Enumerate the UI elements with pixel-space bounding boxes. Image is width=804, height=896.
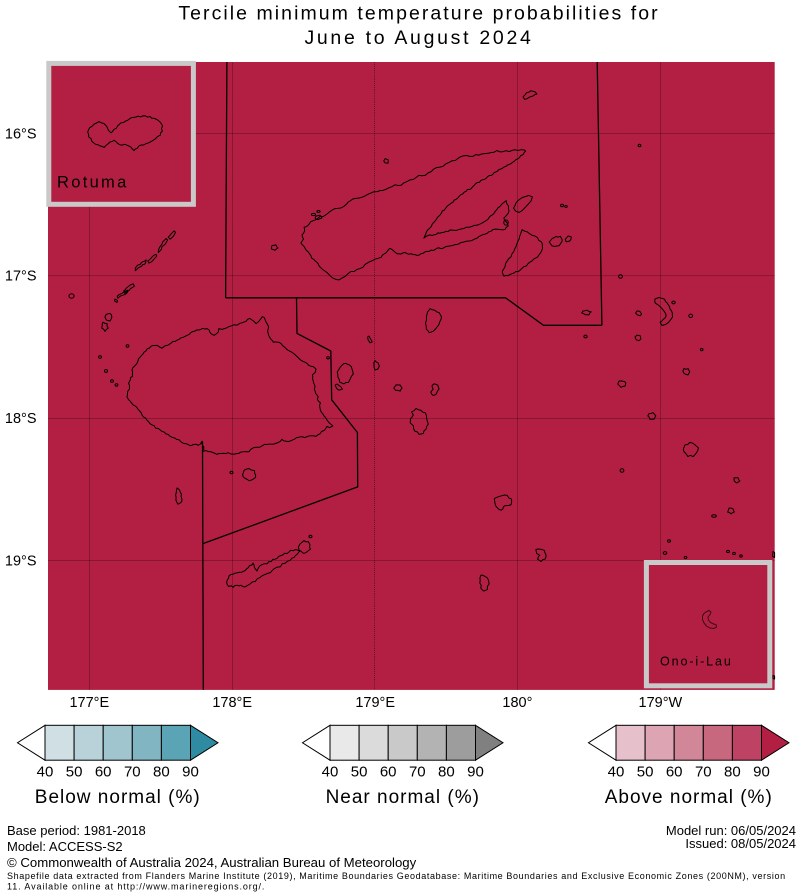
svg-text:60: 60 <box>380 764 397 781</box>
svg-text:Tercile minimum temperature pr: Tercile minimum temperature probabilitie… <box>178 3 659 25</box>
svg-text:Below normal (%): Below normal (%) <box>35 787 201 808</box>
svg-text:60: 60 <box>95 764 112 781</box>
svg-text:179°W: 179°W <box>639 695 683 711</box>
svg-text:180°: 180° <box>502 695 532 711</box>
svg-text:40: 40 <box>322 764 339 781</box>
svg-text:60: 60 <box>666 764 683 781</box>
svg-text:11. Available online at http:/: 11. Available online at http://www.marin… <box>7 882 265 892</box>
svg-text:70: 70 <box>695 764 712 781</box>
svg-text:177°E: 177°E <box>69 695 109 711</box>
svg-text:70: 70 <box>409 764 426 781</box>
svg-text:16°S: 16°S <box>5 127 37 143</box>
svg-text:© Commonwealth of Australia 20: © Commonwealth of Australia 2024, Austra… <box>7 855 417 870</box>
svg-text:179°E: 179°E <box>355 695 395 711</box>
svg-text:50: 50 <box>637 764 654 781</box>
svg-text:19°S: 19°S <box>5 554 37 570</box>
svg-text:17°S: 17°S <box>5 269 37 285</box>
svg-text:Issued: 08/05/2024: Issued: 08/05/2024 <box>685 836 796 851</box>
svg-text:90: 90 <box>753 764 770 781</box>
svg-text:Shapefile data extracted from: Shapefile data extracted from Flanders M… <box>7 871 786 881</box>
svg-text:Near normal (%): Near normal (%) <box>326 787 480 808</box>
svg-text:June to August 2024: June to August 2024 <box>304 27 533 49</box>
svg-text:70: 70 <box>124 764 141 781</box>
svg-text:40: 40 <box>37 764 54 781</box>
svg-text:80: 80 <box>153 764 170 781</box>
svg-text:40: 40 <box>608 764 625 781</box>
svg-text:Rotuma: Rotuma <box>57 174 129 192</box>
svg-text:Model: ACCESS-S2: Model: ACCESS-S2 <box>7 839 123 854</box>
svg-text:90: 90 <box>182 764 199 781</box>
svg-text:Above normal (%): Above normal (%) <box>605 787 773 808</box>
svg-text:50: 50 <box>351 764 368 781</box>
svg-text:Ono-i-Lau: Ono-i-Lau <box>660 655 733 669</box>
svg-text:90: 90 <box>467 764 484 781</box>
svg-text:178°E: 178°E <box>212 695 252 711</box>
svg-text:80: 80 <box>438 764 455 781</box>
svg-text:50: 50 <box>66 764 83 781</box>
svg-text:Base period: 1981-2018: Base period: 1981-2018 <box>7 823 146 838</box>
svg-text:80: 80 <box>724 764 741 781</box>
svg-text:18°S: 18°S <box>5 411 37 427</box>
